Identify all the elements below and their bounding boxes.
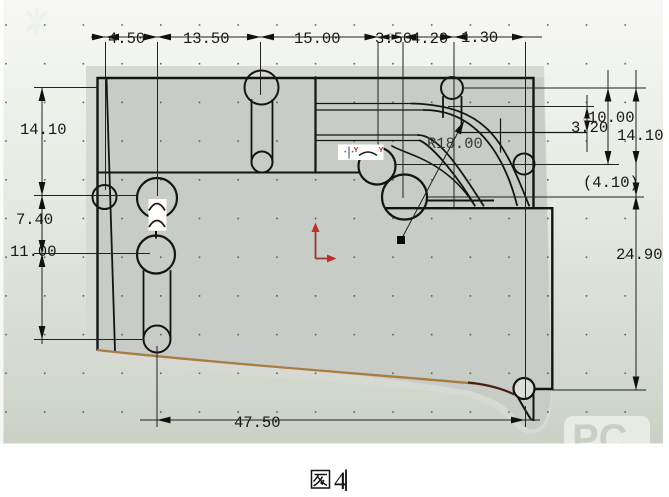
svg-text:Y: Y — [354, 145, 359, 154]
svg-text:14.10: 14.10 — [617, 127, 664, 145]
svg-text:3.50: 3.50 — [375, 30, 412, 48]
svg-text:14.10: 14.10 — [20, 121, 67, 139]
svg-text:4.50: 4.50 — [108, 30, 145, 48]
svg-text:4.20: 4.20 — [411, 30, 448, 48]
svg-text:R18.00: R18.00 — [427, 135, 483, 153]
svg-text:1.30: 1.30 — [461, 29, 498, 47]
svg-text:15.00: 15.00 — [294, 30, 341, 48]
svg-text:47.50: 47.50 — [234, 414, 281, 432]
svg-text:24.90: 24.90 — [616, 246, 663, 264]
svg-text:11.00: 11.00 — [10, 243, 57, 261]
svg-text:Y: Y — [379, 145, 384, 154]
svg-text:4: 4 — [334, 468, 347, 495]
svg-text:13.50: 13.50 — [183, 30, 230, 48]
svg-text:(4.10): (4.10) — [583, 174, 639, 192]
svg-text:7.40: 7.40 — [16, 211, 53, 229]
svg-text:3.20: 3.20 — [571, 119, 608, 137]
